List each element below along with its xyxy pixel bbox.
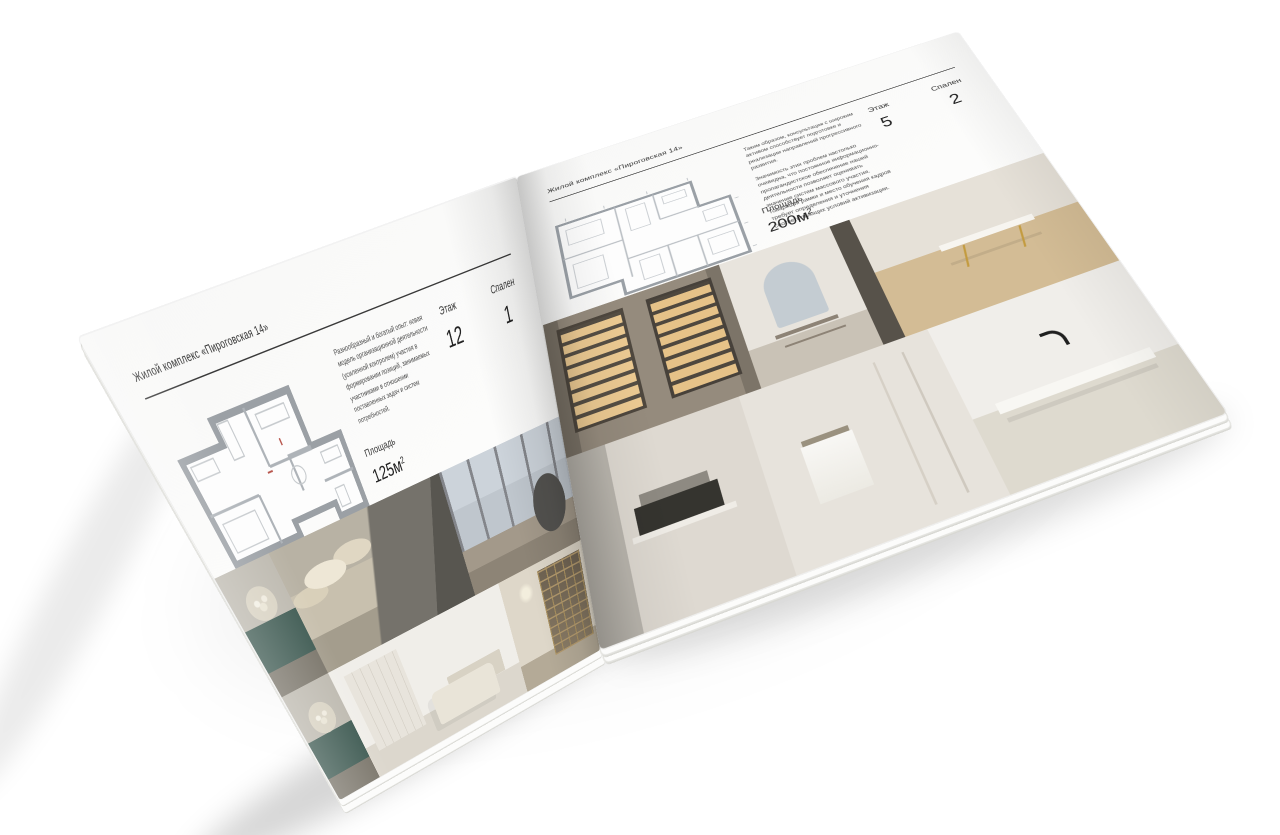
- bedrooms-value: 1: [485, 294, 530, 338]
- left-area-spec: Площадь 125м2: [363, 430, 417, 488]
- right-bedrooms-spec: Спален 2: [918, 73, 986, 115]
- floor-value: 12: [430, 316, 479, 361]
- brochure-mockup: Жилой комплекс «Пироговская 14» Разнообр…: [0, 0, 1280, 835]
- left-bedrooms-spec: Спален 1: [480, 271, 530, 338]
- right-floor-spec: Этаж 5: [850, 96, 917, 139]
